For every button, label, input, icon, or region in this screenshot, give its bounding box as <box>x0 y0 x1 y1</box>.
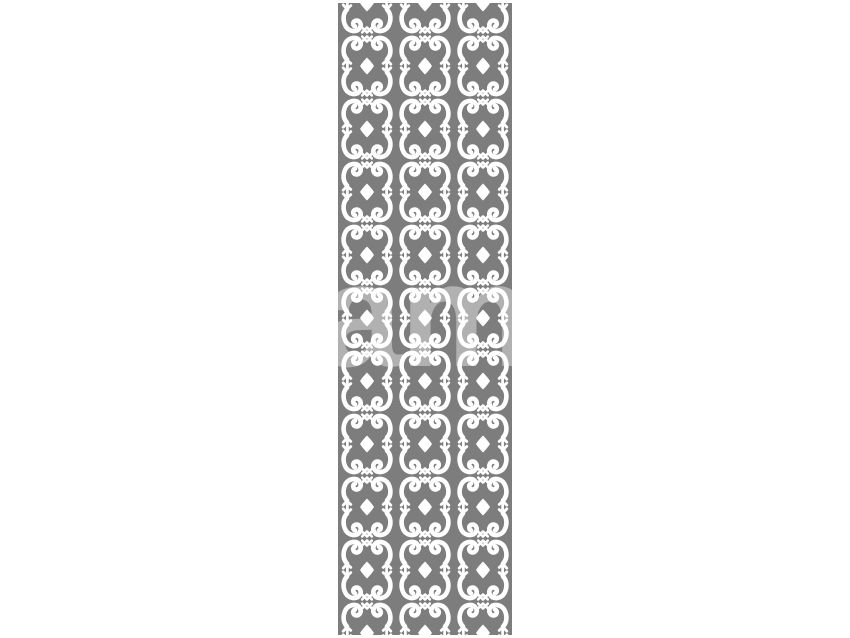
pattern-fill <box>338 3 512 635</box>
panel-pattern-svg <box>338 3 512 635</box>
stock-image-canvas: alamy <box>0 0 850 638</box>
ornamental-lattice-panel <box>338 3 512 635</box>
